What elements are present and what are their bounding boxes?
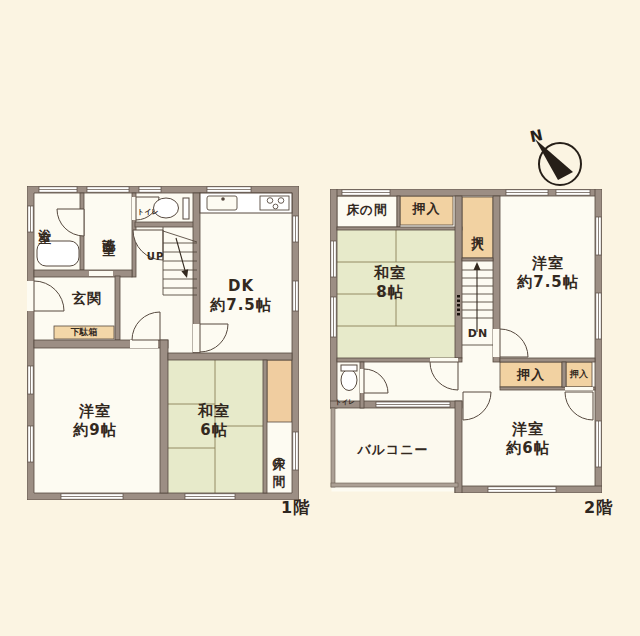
stairs-down-label: DN (463, 326, 493, 342)
japanese6-size: 6帖 (200, 421, 227, 440)
room-label-western75: 洋室 約7.5帖 (504, 251, 592, 295)
floor1-tag: 1階 (281, 498, 310, 519)
compass-icon (526, 130, 590, 192)
room-label-entrance: 玄関 (66, 290, 108, 308)
tokonoma-shelf (267, 360, 292, 422)
floor1-plan: 浴室 洗面室 トイレ UP DK 約7.5帖 玄関 下駄箱 洋室 約9帖 和室 … (27, 186, 299, 500)
stairs-up-label: UP (146, 251, 165, 263)
room-label-western6: 洋室 約6帖 (486, 417, 570, 461)
kitchen-counter-icon (200, 193, 292, 213)
closet-right-label: 押入 (566, 365, 592, 384)
closet-top-label: 押入 (401, 198, 452, 220)
room-label-balcony: バルコニー (347, 441, 439, 459)
closet-middle-label: 押入 (465, 202, 491, 254)
japanese8-size: 8帖 (376, 283, 403, 302)
toilet2-icon (341, 365, 357, 391)
room-label-bath: 浴室 (35, 198, 55, 244)
western75-name: 洋室 (532, 254, 564, 273)
japanese6-name: 和室 (198, 402, 230, 421)
western6-name: 洋室 (512, 420, 544, 439)
shoe-cabinet-label: 下駄箱 (54, 326, 114, 339)
western75-size: 約7.5帖 (517, 273, 579, 292)
room-label-japanese8: 和室 8帖 (348, 261, 432, 305)
room-label-toilet-1f: トイレ (137, 208, 159, 217)
western9-size: 約9帖 (73, 421, 116, 440)
dk-name: DK (228, 277, 254, 296)
balcony-sliding-door-icon (376, 402, 450, 407)
floorplan-page: 浴室 洗面室 トイレ UP DK 約7.5帖 玄関 下駄箱 洋室 約9帖 和室 … (0, 0, 640, 636)
floor1-drawing (27, 186, 299, 500)
western9-name: 洋室 (79, 402, 111, 421)
japanese8-name: 和室 (374, 264, 406, 283)
bathtub-icon (37, 241, 79, 266)
room-label-washroom: 洗面室 (96, 199, 120, 263)
room-label-western9: 洋室 約9帖 (55, 399, 135, 443)
room-label-dk: DK 約7.5帖 (200, 275, 282, 317)
dk-size: 約7.5帖 (210, 296, 272, 315)
room-label-toilet-2f: トイレ (333, 398, 357, 407)
room-label-tokonoma-1f: 床の間 (267, 426, 291, 488)
room-label-japanese6: 和室 6帖 (174, 399, 254, 443)
floor2-plan: 床の間 押入 押入 和室 8帖 洋室 約7.5帖 DN トイレ 押入 押入 洋室… (330, 189, 602, 493)
stove-icon (260, 196, 289, 210)
floor2-tag: 2階 (584, 498, 613, 519)
western6-size: 約6帖 (506, 439, 549, 458)
room-label-tokonoma-2f: 床の間 (339, 199, 395, 221)
closet-left-label: 押入 (501, 365, 561, 385)
